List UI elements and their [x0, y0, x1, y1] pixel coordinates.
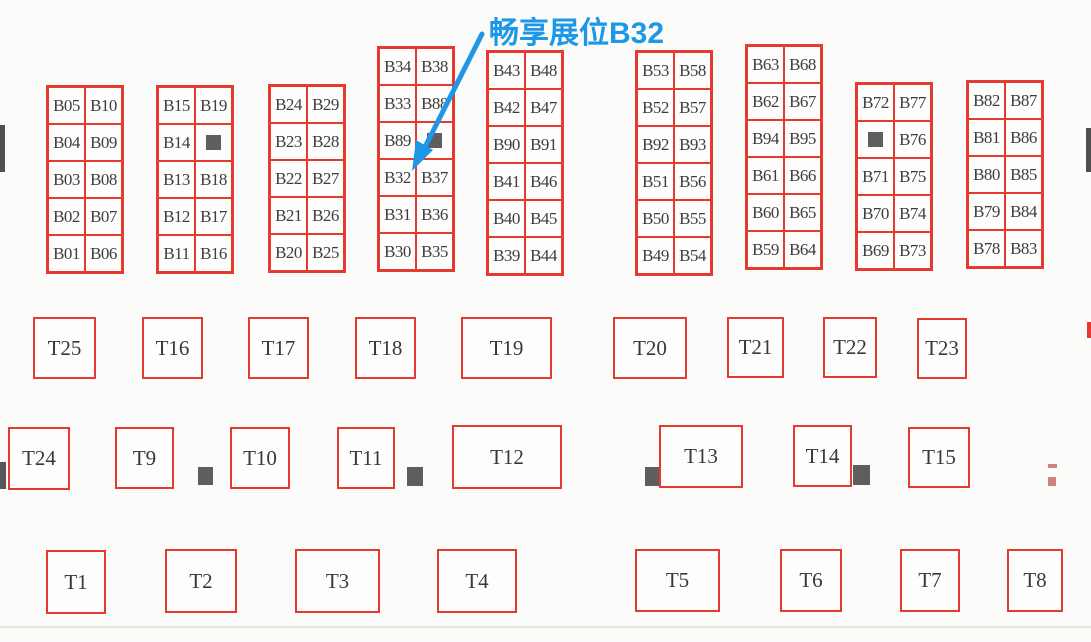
pillar-square-icon: [853, 465, 870, 485]
booth-t20[interactable]: T20: [613, 317, 687, 379]
booth-cell-b65[interactable]: B65: [784, 194, 821, 231]
booth-cell-b83[interactable]: B83: [1005, 230, 1042, 267]
booth-cell-b31[interactable]: B31: [379, 196, 416, 233]
booth-cell-b81[interactable]: B81: [968, 119, 1005, 156]
booth-cell-b95[interactable]: B95: [784, 120, 821, 157]
blocked-square-icon: [427, 133, 442, 148]
booth-cell-b16[interactable]: B16: [195, 235, 232, 272]
booth-cell-b51[interactable]: B51: [637, 163, 674, 200]
booth-cell-b93[interactable]: B93: [674, 126, 711, 163]
left-edge-dark-bar: [0, 125, 5, 172]
booth-cell-b56[interactable]: B56: [674, 163, 711, 200]
booth-cell-b33[interactable]: B33: [379, 85, 416, 122]
booth-cell-b46[interactable]: B46: [525, 163, 562, 200]
booth-t18[interactable]: T18: [355, 317, 416, 379]
booth-t14[interactable]: T14: [793, 425, 852, 487]
booth-t2[interactable]: T2: [165, 549, 237, 613]
booth-cell-b17[interactable]: B17: [195, 198, 232, 235]
booth-cell-b37[interactable]: B37: [416, 159, 453, 196]
booth-cell-b34[interactable]: B34: [379, 48, 416, 85]
booth-cell-b44[interactable]: B44: [525, 237, 562, 274]
booth-column-8: B72B77B76B71B75B70B74B69B73: [855, 82, 933, 271]
right-faint-mark-top: [1048, 464, 1057, 468]
booth-cell-b55[interactable]: B55: [674, 200, 711, 237]
booth-cell-blocked: [857, 121, 894, 158]
pillar-square-icon: [645, 467, 659, 486]
booth-column-9: B82B87B81B86B80B85B79B84B78B83: [966, 80, 1044, 269]
booth-t24[interactable]: T24: [8, 427, 70, 490]
booth-cell-b20[interactable]: B20: [270, 234, 307, 271]
booth-t19[interactable]: T19: [461, 317, 552, 379]
booth-cell-b61[interactable]: B61: [747, 157, 784, 194]
booth-cell-b35[interactable]: B35: [416, 233, 453, 270]
booth-cell-b21[interactable]: B21: [270, 197, 307, 234]
booth-cell-b85[interactable]: B85: [1005, 156, 1042, 193]
booth-cell-b92[interactable]: B92: [637, 126, 674, 163]
booth-cell-b28[interactable]: B28: [307, 123, 344, 160]
booth-cell-b90[interactable]: B90: [488, 126, 525, 163]
booth-cell-b71[interactable]: B71: [857, 158, 894, 195]
booth-t17[interactable]: T17: [248, 317, 309, 379]
booth-cell-b29[interactable]: B29: [307, 86, 344, 123]
booth-cell-b88[interactable]: B88: [416, 85, 453, 122]
booth-cell-b76[interactable]: B76: [894, 121, 931, 158]
booth-cell-b23[interactable]: B23: [270, 123, 307, 160]
booth-cell-b11[interactable]: B11: [158, 235, 195, 272]
booth-cell-b73[interactable]: B73: [894, 232, 931, 269]
right-edge-booth-fragment: [1087, 322, 1091, 338]
booth-cell-b25[interactable]: B25: [307, 234, 344, 271]
booth-cell-b59[interactable]: B59: [747, 231, 784, 268]
booth-column-5: B43B48B42B47B90B91B41B46B40B45B39B44: [486, 50, 564, 276]
booth-cell-b49[interactable]: B49: [637, 237, 674, 274]
booth-cell-b66[interactable]: B66: [784, 157, 821, 194]
bottom-boundary-line: [0, 626, 1091, 628]
booth-cell-b04[interactable]: B04: [48, 124, 85, 161]
pillar-square-icon: [407, 467, 423, 486]
booth-column-6: B53B58B52B57B92B93B51B56B50B55B49B54: [635, 50, 713, 276]
booth-cell-b30[interactable]: B30: [379, 233, 416, 270]
booth-cell-b50[interactable]: B50: [637, 200, 674, 237]
right-edge-dark-bar: [1086, 128, 1091, 172]
booth-cell-b18[interactable]: B18: [195, 161, 232, 198]
booth-cell-b39[interactable]: B39: [488, 237, 525, 274]
booth-cell-b74[interactable]: B74: [894, 195, 931, 232]
booth-cell-b53[interactable]: B53: [637, 52, 674, 89]
booth-cell-b15[interactable]: B15: [158, 87, 195, 124]
booth-t3[interactable]: T3: [295, 549, 380, 613]
booth-cell-b09[interactable]: B09: [85, 124, 122, 161]
booth-cell-b79[interactable]: B79: [968, 193, 1005, 230]
booth-column-4: B34B38B33B88B89B32B37B31B36B30B35: [377, 46, 455, 272]
booth-cell-b77[interactable]: B77: [894, 84, 931, 121]
booth-cell-b38[interactable]: B38: [416, 48, 453, 85]
annotation-label: 畅享展位B32: [489, 8, 664, 52]
booth-cell-b70[interactable]: B70: [857, 195, 894, 232]
booth-t16[interactable]: T16: [142, 317, 203, 379]
booth-cell-b72[interactable]: B72: [857, 84, 894, 121]
booth-cell-b54[interactable]: B54: [674, 237, 711, 274]
booth-cell-b10[interactable]: B10: [85, 87, 122, 124]
booth-cell-b43[interactable]: B43: [488, 52, 525, 89]
booth-cell-b60[interactable]: B60: [747, 194, 784, 231]
booth-cell-b13[interactable]: B13: [158, 161, 195, 198]
booth-cell-b08[interactable]: B08: [85, 161, 122, 198]
booth-cell-b24[interactable]: B24: [270, 86, 307, 123]
booth-cell-b69[interactable]: B69: [857, 232, 894, 269]
booth-cell-b64[interactable]: B64: [784, 231, 821, 268]
booth-t25[interactable]: T25: [33, 317, 96, 379]
booth-cell-b12[interactable]: B12: [158, 198, 195, 235]
booth-column-7: B63B68B62B67B94B95B61B66B60B65B59B64: [745, 44, 823, 270]
booth-column-2: B15B19B14B13B18B12B17B11B16: [156, 85, 234, 274]
booth-t6[interactable]: T6: [780, 549, 842, 612]
exhibition-floor-plan: B05B10B04B09B03B08B02B07B01B06B15B19B14B…: [0, 0, 1091, 642]
blocked-square-icon: [868, 132, 883, 147]
booth-cell-b52[interactable]: B52: [637, 89, 674, 126]
booth-t12[interactable]: T12: [452, 425, 562, 489]
blocked-square-icon: [206, 135, 221, 150]
left-edge-square-fragment: [0, 462, 6, 489]
booth-t15[interactable]: T15: [908, 427, 970, 488]
booth-cell-b01[interactable]: B01: [48, 235, 85, 272]
booth-cell-b67[interactable]: B67: [784, 83, 821, 120]
booth-cell-blocked: [416, 122, 453, 159]
booth-column-3: B24B29B23B28B22B27B21B26B20B25: [268, 84, 346, 273]
booth-cell-b45[interactable]: B45: [525, 200, 562, 237]
booth-cell-b19[interactable]: B19: [195, 87, 232, 124]
booth-t10[interactable]: T10: [230, 427, 290, 489]
booth-cell-b02[interactable]: B02: [48, 198, 85, 235]
booth-cell-b05[interactable]: B05: [48, 87, 85, 124]
booth-cell-b63[interactable]: B63: [747, 46, 784, 83]
booth-cell-b57[interactable]: B57: [674, 89, 711, 126]
booth-t13[interactable]: T13: [659, 425, 743, 488]
booth-cell-b36[interactable]: B36: [416, 196, 453, 233]
booth-t23[interactable]: T23: [917, 318, 967, 379]
booth-column-1: B05B10B04B09B03B08B02B07B01B06: [46, 85, 124, 274]
booth-cell-b84[interactable]: B84: [1005, 193, 1042, 230]
booth-cell-b07[interactable]: B07: [85, 198, 122, 235]
booth-t22[interactable]: T22: [823, 317, 877, 378]
booth-t7[interactable]: T7: [900, 549, 960, 612]
booth-cell-b75[interactable]: B75: [894, 158, 931, 195]
booth-cell-b40[interactable]: B40: [488, 200, 525, 237]
booth-cell-b62[interactable]: B62: [747, 83, 784, 120]
booth-t11[interactable]: T11: [337, 427, 395, 489]
booth-t5[interactable]: T5: [635, 549, 720, 612]
booth-cell-b91[interactable]: B91: [525, 126, 562, 163]
booth-cell-b78[interactable]: B78: [968, 230, 1005, 267]
booth-cell-b87[interactable]: B87: [1005, 82, 1042, 119]
booth-t1[interactable]: T1: [46, 550, 106, 614]
booth-cell-b42[interactable]: B42: [488, 89, 525, 126]
pillar-square-icon: [198, 467, 213, 485]
booth-cell-b47[interactable]: B47: [525, 89, 562, 126]
booth-cell-b27[interactable]: B27: [307, 160, 344, 197]
booth-cell-blocked: [195, 124, 232, 161]
booth-cell-b41[interactable]: B41: [488, 163, 525, 200]
booth-t21[interactable]: T21: [727, 317, 784, 378]
booth-cell-b68[interactable]: B68: [784, 46, 821, 83]
booth-cell-b82[interactable]: B82: [968, 82, 1005, 119]
booth-cell-b94[interactable]: B94: [747, 120, 784, 157]
booth-cell-b26[interactable]: B26: [307, 197, 344, 234]
booth-cell-b86[interactable]: B86: [1005, 119, 1042, 156]
booth-t8[interactable]: T8: [1007, 549, 1063, 612]
booth-cell-b06[interactable]: B06: [85, 235, 122, 272]
booth-cell-b22[interactable]: B22: [270, 160, 307, 197]
booth-t9[interactable]: T9: [115, 427, 174, 489]
booth-cell-b80[interactable]: B80: [968, 156, 1005, 193]
booth-t4[interactable]: T4: [437, 549, 517, 613]
booth-cell-b48[interactable]: B48: [525, 52, 562, 89]
booth-cell-b14[interactable]: B14: [158, 124, 195, 161]
booth-cell-b58[interactable]: B58: [674, 52, 711, 89]
right-faint-mark-bottom: [1048, 477, 1056, 486]
booth-cell-b03[interactable]: B03: [48, 161, 85, 198]
booth-cell-b89[interactable]: B89: [379, 122, 416, 159]
booth-cell-b32[interactable]: B32: [379, 159, 416, 196]
